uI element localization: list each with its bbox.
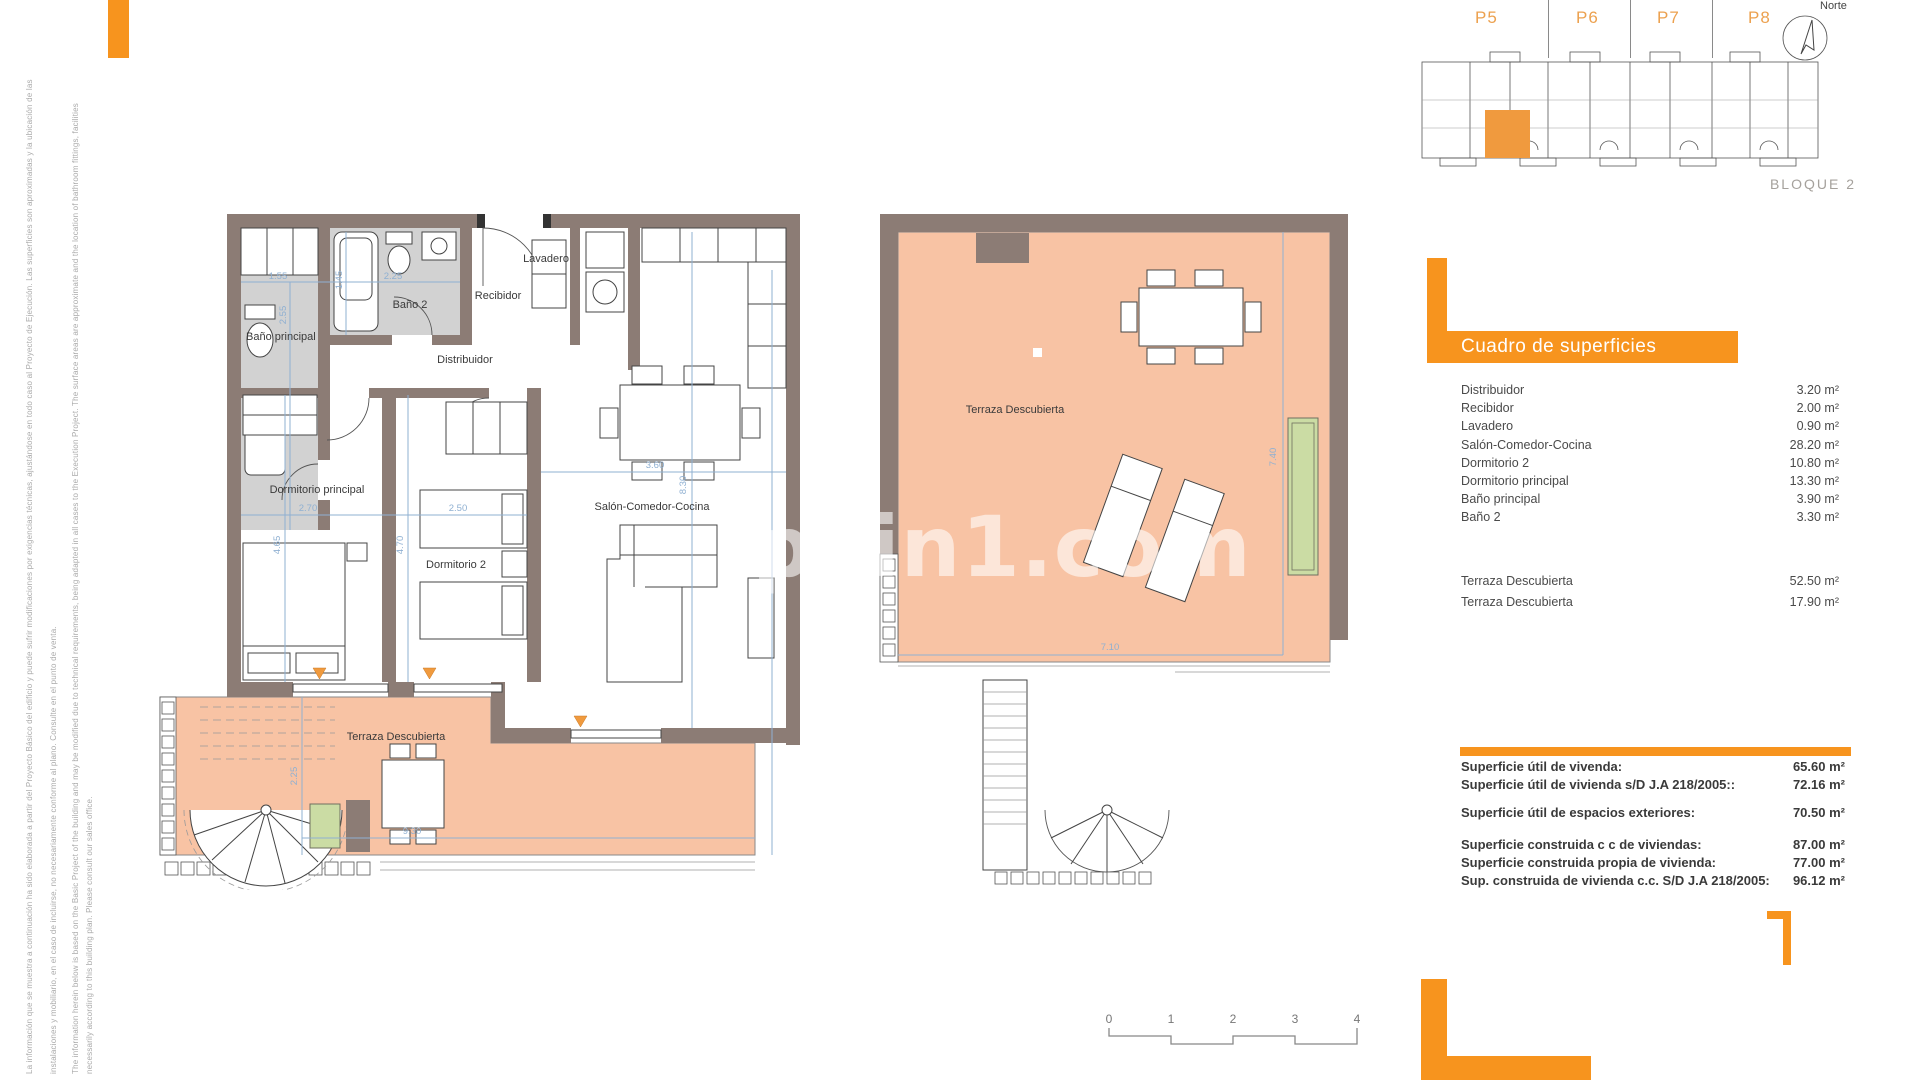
svg-text:Dormitorio principal: Dormitorio principal xyxy=(270,484,365,496)
summary-accent-bar xyxy=(1460,747,1851,756)
summary-row: Superficie útil de vivenda:65.60 m² xyxy=(1461,758,1845,776)
terrace-table: Terraza Descubierta52.50 m² Terraza Desc… xyxy=(1461,571,1839,613)
table-row: Distribuidor3.20 m² xyxy=(1461,381,1839,399)
key-plan-divider xyxy=(1548,0,1549,58)
svg-text:Distribuidor: Distribuidor xyxy=(437,354,493,366)
key-plan-section-p6: P6 xyxy=(1576,8,1599,28)
table-row: Lavadero0.90 m² xyxy=(1461,417,1839,435)
sofa xyxy=(607,525,717,682)
legal-line-en-1: The information herein below is based on… xyxy=(71,103,80,1074)
terrace-storage xyxy=(346,800,370,852)
dim-740: 7.40 xyxy=(1268,448,1279,467)
table-row: Dormitorio principal13.30 m² xyxy=(1461,472,1839,490)
svg-text:3: 3 xyxy=(1292,1012,1299,1026)
key-plan-divider xyxy=(1630,0,1631,58)
svg-text:4: 4 xyxy=(1354,1012,1361,1026)
svg-text:1: 1 xyxy=(1168,1012,1175,1026)
terrace-dot xyxy=(1033,348,1042,357)
legal-line-es-1: La información que se muestra a continua… xyxy=(25,79,34,1074)
key-plan-section-p8: P8 xyxy=(1748,8,1771,28)
svg-text:2.70: 2.70 xyxy=(299,503,318,514)
compass-icon xyxy=(1783,16,1827,60)
summary-row: Superficie útil de espacios exteriores:7… xyxy=(1461,804,1845,822)
svg-text:8.30: 8.30 xyxy=(678,476,689,495)
terrace-railing-left xyxy=(160,697,176,855)
roof-terrace-floor xyxy=(898,232,1330,662)
planter xyxy=(310,804,340,848)
highlighted-unit xyxy=(1485,110,1530,158)
summary-row: Superficie útil de vivienda s/D J.A 218/… xyxy=(1461,776,1845,794)
surface-table-title: Cuadro de superficies xyxy=(1447,331,1738,363)
summary-row: Sup. construida de vivienda c.c. S/D J.A… xyxy=(1461,872,1845,890)
summary-row: Superficie construida c c de viviendas:8… xyxy=(1461,836,1845,854)
svg-text:4.70: 4.70 xyxy=(395,536,406,555)
svg-text:2.25: 2.25 xyxy=(289,767,300,786)
svg-text:Baño principal: Baño principal xyxy=(246,331,316,343)
table-row: Baño 23.30 m² xyxy=(1461,508,1839,526)
lower-stairs xyxy=(898,666,1330,884)
svg-text:Terraza Descubierta: Terraza Descubierta xyxy=(347,731,446,743)
key-plan-section-p5: P5 xyxy=(1475,8,1498,28)
svg-text:2.25: 2.25 xyxy=(384,271,403,282)
accent-l-bracket xyxy=(1427,258,1447,363)
building-outline xyxy=(1422,52,1818,166)
table-row: Baño principal3.90 m² xyxy=(1461,490,1839,508)
key-plan-divider xyxy=(1712,0,1713,58)
apartment-floor-plan: 1.55 2.25 2.55 1.45 2.70 2.50 4.65 4.70 … xyxy=(150,210,810,890)
svg-text:1.45: 1.45 xyxy=(334,271,345,290)
legal-line-es-2: instalaciones y mobiliario, en el caso d… xyxy=(49,626,58,1074)
kitchen-counter xyxy=(642,228,786,388)
summary-table: Superficie útil de vivenda:65.60 m² Supe… xyxy=(1461,758,1845,890)
dim-710: 7.10 xyxy=(1101,642,1120,653)
north-label: Norte xyxy=(1820,0,1847,12)
table-row: Salón-Comedor-Cocina28.20 m² xyxy=(1461,436,1839,454)
accent-bracket-small xyxy=(1783,911,1791,965)
key-plan: P5 P6 P7 P8 Norte xyxy=(1420,0,1856,205)
svg-text:Salón-Comedor-Cocina: Salón-Comedor-Cocina xyxy=(595,501,711,513)
svg-text:4.65: 4.65 xyxy=(272,536,283,555)
svg-text:Dormitorio 2: Dormitorio 2 xyxy=(426,559,486,571)
svg-text:0: 0 xyxy=(1106,1012,1113,1026)
laundry-fixtures xyxy=(586,232,624,312)
watermark: pain1.com xyxy=(752,498,1252,596)
dining-set xyxy=(600,366,760,480)
svg-text:Baño 2: Baño 2 xyxy=(393,299,428,311)
svg-text:Recibidor: Recibidor xyxy=(475,290,522,302)
block-label: BLOQUE 2 xyxy=(1770,176,1856,192)
accent-l-bottom xyxy=(1421,1056,1591,1080)
bedroom2-furniture xyxy=(420,402,527,639)
planter xyxy=(1288,418,1318,575)
summary-row: Superficie construida propia de vivienda… xyxy=(1461,854,1845,872)
table-row: Terraza Descubierta17.90 m² xyxy=(1461,592,1839,613)
hall-closet xyxy=(532,240,566,308)
svg-text:9.30: 9.30 xyxy=(403,826,422,837)
svg-text:2.50: 2.50 xyxy=(449,503,468,514)
surface-table: Distribuidor3.20 m² Recibidor2.00 m² Lav… xyxy=(1461,381,1839,527)
svg-text:1.55: 1.55 xyxy=(269,271,288,282)
corner-accent-top-left xyxy=(108,0,129,58)
table-row: Dormitorio 210.80 m² xyxy=(1461,454,1839,472)
key-plan-section-p7: P7 xyxy=(1657,8,1680,28)
svg-text:3.60: 3.60 xyxy=(646,460,665,471)
roof-terrace-label: Terraza Descubierta xyxy=(966,404,1065,416)
svg-text:2: 2 xyxy=(1230,1012,1237,1026)
table-row: Recibidor2.00 m² xyxy=(1461,399,1839,417)
legal-line-en-2: necessarily according to this building p… xyxy=(85,796,94,1074)
table-row: Terraza Descubierta52.50 m² xyxy=(1461,571,1839,592)
closet-entry xyxy=(241,228,318,275)
scale-bar: 0 1 2 3 4 xyxy=(1080,995,1380,1055)
svg-text:2.55: 2.55 xyxy=(278,306,289,325)
svg-text:Lavadero: Lavadero xyxy=(523,253,569,265)
